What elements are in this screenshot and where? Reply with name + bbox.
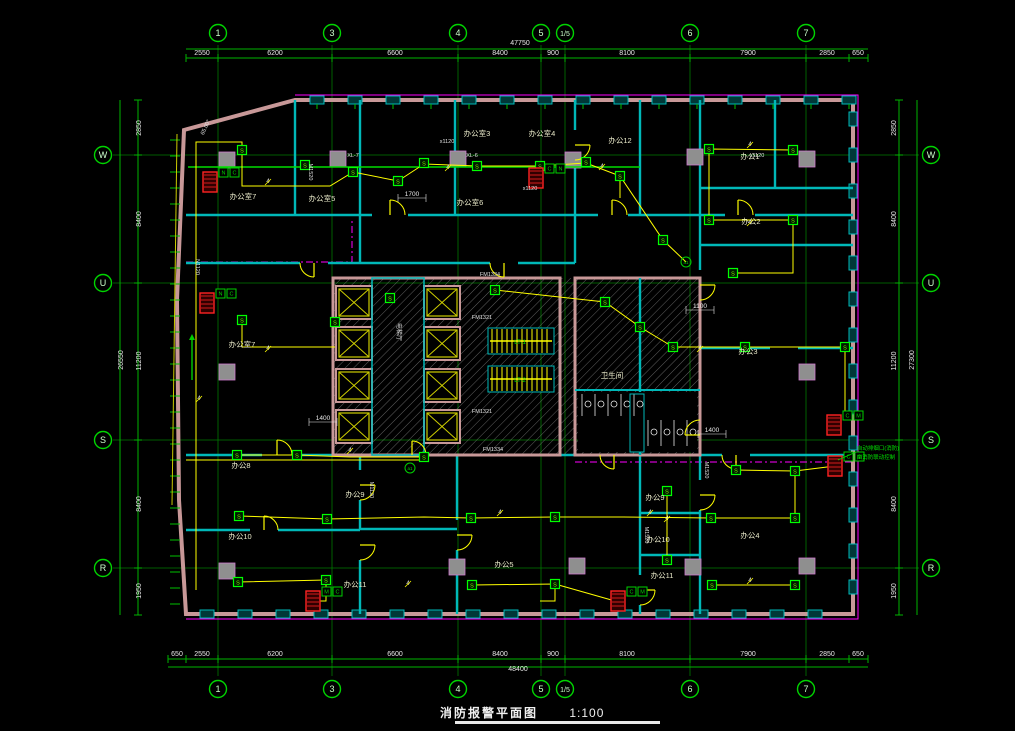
drawing-title-text: 消防报警平面图 [440,706,538,720]
inner-dim: 1400 [316,415,331,422]
smoke-detector-glyph: S [791,219,795,225]
grid-bubble-bottom-6-label: 6 [687,684,692,694]
grid-bubble-top-1/5-label: 1/5 [560,31,570,38]
code-label: M1520 [307,164,313,181]
dim-value-left: 8400 [136,496,143,512]
smoke-detector-glyph: S [240,319,244,325]
title-underline [455,721,660,724]
room-label: 办公9 [345,489,364,499]
window-mark [804,96,818,104]
smoke-detector-glyph: S [665,559,669,565]
inner-dim: 1100 [693,303,707,310]
alarm-wire [733,222,793,273]
window-mark [808,610,822,618]
device-circle-label: a1 [407,466,413,471]
smoke-detector-glyph: S [671,346,675,352]
smoke-detector-glyph: S [236,581,240,587]
grid-bubble-right-U-label: U [928,278,935,288]
smoke-detector-glyph: S [475,165,479,171]
room-label: 办公室7 [230,191,257,201]
toilet-floor [578,392,697,452]
hydrant-tag: C [233,171,237,177]
code-label: x1120 [440,139,455,145]
smoke-detector-glyph: S [584,161,588,167]
dim-value-top: 8400 [492,50,508,57]
grid-bubble-top-5-label: 5 [538,28,543,38]
structural-column [799,151,815,167]
code-label: N1120 [194,259,200,275]
dim-value-bottom: 6600 [387,651,403,658]
dim-value-top: 8100 [619,50,635,57]
code-label: 65.00° [200,119,212,136]
dim-value-bottom: 8400 [492,651,508,658]
dim-value-bottom: 900 [547,651,559,658]
floor-plan-svg: 113344551/51/56677WWUUSSRR25506200660084… [0,0,1015,731]
grid-bubble-right-R-label: R [928,563,935,573]
grid-bubble-bottom-1-label: 1 [215,684,220,694]
window-mark [652,96,666,104]
smoke-detector-glyph: S [325,518,329,524]
grid-bubble-right-W-label: W [927,150,936,160]
door-swing [300,263,314,277]
grid-bubble-bottom-3-label: 3 [329,684,334,694]
hydrant-tag: C [548,167,552,173]
code-label: FM1334 [480,272,500,278]
window-mark [386,96,400,104]
grid-bubble-bottom-4-label: 4 [455,684,460,694]
smoke-detector-glyph: S [396,180,400,186]
window-mark [770,610,784,618]
room-label: 办公室5 [309,193,336,203]
window-mark [766,96,780,104]
hydrant-tag: C [336,590,340,596]
window-mark [614,96,628,104]
grid-bubble-top-1-label: 1 [215,28,220,38]
dim-value-right: 11200 [891,351,898,370]
window-mark [542,610,556,618]
dim-value-bottom: 2850 [819,651,835,658]
window-mark [849,472,857,486]
smoke-detector-glyph: S [388,297,392,303]
window-mark [849,544,857,558]
door-swing [738,200,753,215]
grid-bubble-bottom-5-label: 5 [538,684,543,694]
window-mark [504,610,518,618]
dim-value-top: 900 [547,50,559,57]
dim-value-top: 2850 [819,50,835,57]
window-mark [656,610,670,618]
smoke-detector-glyph: S [665,490,669,496]
code-label: FM1321 [472,315,492,321]
dim-value-bottom: 650 [852,651,864,658]
structural-column [219,152,235,168]
elevator-lobby-label: 电梯厅 [395,323,403,341]
window-mark [538,96,552,104]
code-label: FM1334 [483,447,503,453]
window-mark [849,220,857,234]
code-label: M1120 [368,482,374,498]
dim-value-right: 8400 [891,211,898,227]
grid-bubble-left-U-label: U [100,278,107,288]
room-label: 办公室6 [457,197,484,207]
smoke-detector-glyph: S [324,579,328,585]
hydrant-tag: N [219,292,223,298]
device-circle-label: a1 [683,260,689,265]
structural-column [799,364,815,380]
dim-total-bottom: 48400 [508,666,528,673]
dim-value-right: 8400 [891,496,898,512]
room-label: 卫生间 [601,370,624,380]
room-label: 办公3 [738,346,757,356]
alarm-wire [424,163,620,198]
code-label: x1120 [523,186,538,192]
dim-value-right: 1950 [891,583,898,599]
smoke-detector-glyph: S [707,148,711,154]
smoke-detector-glyph: S [707,219,711,225]
room-label: 办公9 [645,492,664,502]
structural-column [687,149,703,165]
smoke-detector-glyph: S [469,517,473,523]
smoke-detector-glyph: S [295,454,299,460]
flow-arrow-head [189,334,195,340]
window-mark [466,610,480,618]
door-swing [277,440,292,455]
room-label: 办公2 [741,216,760,226]
smoke-detector-glyph: S [791,149,795,155]
dim-total-right: 27300 [909,350,916,370]
grid-bubble-top-6-label: 6 [687,28,692,38]
window-mark [576,96,590,104]
window-mark [732,610,746,618]
window-mark [849,256,857,270]
smoke-detector-glyph: S [553,516,557,522]
door-swing [700,495,715,510]
window-mark [849,580,857,594]
window-mark [842,96,856,104]
grid-bubble-left-R-label: R [100,563,107,573]
window-mark [728,96,742,104]
inner-dim: 1400 [705,427,720,434]
structural-column [685,559,701,575]
window-mark [849,184,857,198]
window-mark [849,436,857,450]
alarm-wire [555,584,615,601]
dim-value-left: 8400 [136,211,143,227]
window-mark [849,292,857,306]
smoke-detector-glyph: S [237,515,241,521]
dim-value-top: 650 [852,50,864,57]
alarm-wire [242,320,335,347]
cad-drawing-canvas[interactable]: 113344551/51/56677WWUUSSRR25506200660084… [0,0,1015,731]
drawing-title: 消防报警平面图 1:100 [440,704,604,721]
room-label: 办公室3 [464,128,491,138]
room-label: 办公5 [494,559,513,569]
window-mark [462,96,476,104]
smoke-detector-glyph: S [793,517,797,523]
smoke-detector-glyph: S [422,162,426,168]
smoke-detector-glyph: S [793,584,797,590]
curtain-wall-line [186,218,352,262]
window-mark [849,148,857,162]
dim-value-bottom: 7900 [740,651,756,658]
room-label: 办公11 [344,579,367,589]
smoke-detector-glyph: S [603,301,607,307]
hydrant-tag: N [222,171,226,177]
dim-value-left: 1950 [136,583,143,599]
door-swing [264,516,278,530]
smoke-detector-glyph: S [734,469,738,475]
hydrant-tag: M [324,590,329,596]
note-text: 自动排烟口(消防) [857,444,899,452]
grid-bubble-bottom-1/5-label: 1/5 [560,687,570,694]
room-label: 办公4 [740,530,759,540]
hydrant-tag: C [630,590,634,596]
structural-column [330,151,346,167]
hydrant-tag: M [640,590,645,596]
smoke-detector-glyph: S [422,456,426,462]
hydrant-tag: M [856,414,861,420]
smoke-detector-glyph: S [710,584,714,590]
grid-bubble-top-4-label: 4 [455,28,460,38]
dim-value-bottom: 2550 [194,651,210,658]
code-label: M1520 [703,462,709,479]
code-label: FM1321 [472,409,492,415]
hydrant-tag: C [846,414,850,420]
smoke-detector-glyph: S [333,321,337,327]
alarm-wire [736,470,795,518]
smoke-detector-glyph: S [661,239,665,245]
grid-bubble-bottom-7-label: 7 [803,684,808,694]
hydrant-tag: N [559,167,563,173]
code-label: x1120 [750,153,765,159]
dim-value-top: 6600 [387,50,403,57]
dim-value-right: 2850 [891,120,898,136]
smoke-detector-glyph: S [731,272,735,278]
room-label: 办公11 [651,570,674,580]
smoke-detector-glyph: S [553,583,557,589]
room-label: 办公10 [228,531,251,541]
structural-column [219,563,235,579]
window-mark [238,610,252,618]
hydrant-tag: C [230,292,234,298]
smoke-detector-glyph: S [493,289,497,295]
room-label: 办公8 [231,460,250,470]
door-swing [390,200,405,215]
smoke-detector-glyph: S [303,164,307,170]
dim-value-bottom: 8100 [619,651,635,658]
dim-value-top: 2550 [194,50,210,57]
smoke-detector-glyph: S [618,175,622,181]
smoke-detector-glyph: S [843,346,847,352]
alarm-wire [620,176,686,262]
dim-total-top: 47750 [510,40,530,47]
window-mark [849,508,857,522]
stair-label: LT-1 [514,340,526,346]
window-mark [849,364,857,378]
grid-bubble-left-W-label: W [99,150,108,160]
grid-bubble-right-S-label: S [928,435,934,445]
window-mark [428,610,442,618]
door-swing [612,200,627,215]
inner-dim: 1700 [405,191,420,198]
door-swing [457,535,472,550]
window-mark [200,610,214,618]
door-swing [360,545,375,560]
dim-value-bottom: 650 [171,651,183,658]
window-mark [849,112,857,126]
code-label: M1520 [643,527,649,544]
smoke-detector-glyph: S [240,149,244,155]
structural-column [799,558,815,574]
grid-bubble-top-3-label: 3 [329,28,334,38]
dim-value-bottom: 6200 [267,651,283,658]
window-mark [849,328,857,342]
smoke-detector-glyph: S [638,326,642,332]
grid-bubble-left-S-label: S [100,435,106,445]
code-label: XL-6 [466,153,478,159]
window-mark [690,96,704,104]
smoke-detector-glyph: S [470,584,474,590]
code-label: XL-7 [347,153,359,159]
room-label: 办公12 [608,135,631,145]
structural-column [569,558,585,574]
smoke-detector-glyph: S [235,454,239,460]
window-mark [580,610,594,618]
room-label: 办公室7 [229,339,256,349]
window-mark [276,610,290,618]
dim-value-top: 7900 [740,50,756,57]
dim-value-left: 11200 [136,351,143,370]
smoke-detector-glyph: S [709,517,713,523]
window-mark [390,610,404,618]
stair-label: LT-2 [514,378,526,384]
window-mark [310,96,324,104]
alarm-wire [472,584,555,601]
grid-bubble-top-7-label: 7 [803,28,808,38]
room-label: 办公室4 [529,128,556,138]
dim-value-top: 6200 [267,50,283,57]
note-text: 由消防联动控制 [857,453,896,461]
door-swing [700,285,715,300]
window-mark [424,96,438,104]
smoke-detector-glyph: S [351,171,355,177]
dim-total-left: 26550 [118,350,125,370]
window-mark [500,96,514,104]
structural-column [219,364,235,380]
dim-value-left: 2850 [136,120,143,136]
smoke-detector-glyph: S [793,470,797,476]
structural-column [449,559,465,575]
drawing-scale: 1:100 [569,706,604,720]
